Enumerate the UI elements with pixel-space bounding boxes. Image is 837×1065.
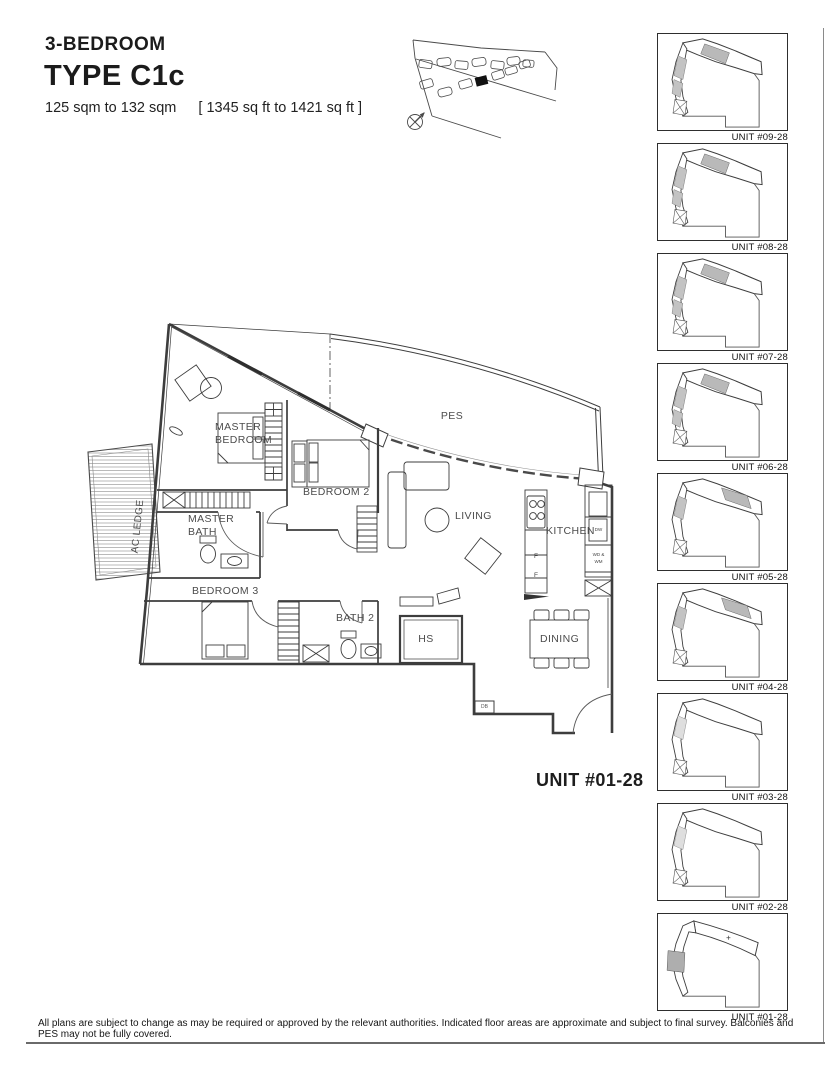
key-plan-unit-label: UNIT #06-28 — [657, 461, 788, 473]
key-plan-item: UNIT #02-28 — [657, 803, 788, 913]
key-plan-item: UNIT #06-28 — [657, 363, 788, 473]
key-plan-unit-label: UNIT #07-28 — [657, 351, 788, 363]
dishwasher-label: DW — [585, 526, 612, 533]
key-plan-thumbnail — [657, 363, 788, 461]
key-plan-item: UNIT #04-28 — [657, 583, 788, 693]
plan-area-range: 125 sqm to 132 sqm [ 1345 sq ft to 1421 … — [45, 100, 362, 116]
key-plan-thumbnail — [657, 253, 788, 351]
room-label-living: LIVING — [455, 510, 492, 523]
key-plan-thumbnail — [657, 803, 788, 901]
room-label-bath2: BATH 2 — [336, 612, 374, 625]
unit-number-label: UNIT #01-28 — [536, 770, 643, 791]
site-location-map — [408, 40, 558, 138]
key-plan-thumbnail — [657, 583, 788, 681]
disclaimer-text: All plans are subject to change as may b… — [38, 1018, 810, 1040]
key-plan-item: UNIT #09-28 — [657, 33, 788, 143]
sliding-door-wall — [375, 434, 588, 479]
plan-category-title: 3-BEDROOM — [45, 34, 166, 56]
key-plan-unit-label: UNIT #03-28 — [657, 791, 788, 803]
area-imperial: [ 1345 sq ft to 1421 sq ft ] — [198, 100, 362, 116]
area-metric: 125 sqm to 132 sqm — [45, 100, 176, 116]
unit-floor-plan — [88, 324, 612, 733]
room-label-bedroom3: BEDROOM 3 — [192, 585, 259, 598]
key-plan-unit-label: UNIT #09-28 — [657, 131, 788, 143]
door-swings — [218, 506, 612, 733]
floor-plan-page: 3-BEDROOM TYPE C1c 125 sqm to 132 sqm [ … — [0, 0, 837, 1065]
room-label-dining: DINING — [540, 633, 578, 646]
room-label-master-bath: MASTER BATH — [188, 513, 234, 539]
key-plan-unit-label: UNIT #08-28 — [657, 241, 788, 253]
pes-boundary — [330, 334, 603, 477]
key-plan-column: UNIT #09-28 UNIT #08-28 UNIT #07-28 UNIT… — [657, 33, 788, 1023]
room-label-hs: HS — [410, 633, 442, 646]
key-plan-unit-label: UNIT #02-28 — [657, 901, 788, 913]
key-plan-unit-label: UNIT #05-28 — [657, 571, 788, 583]
key-plan-thumbnail — [657, 693, 788, 791]
fridge-label-2: F — [525, 572, 547, 579]
bathroom-fixtures — [200, 536, 381, 662]
compass-icon — [408, 113, 425, 130]
key-plan-thumbnail — [657, 143, 788, 241]
kitchen-counters — [524, 485, 612, 600]
db-label: DB — [475, 704, 494, 710]
room-label-pes: PES — [434, 410, 470, 423]
key-plan-item: UNIT #03-28 — [657, 693, 788, 803]
washer-dryer-label: WD & WM — [585, 551, 612, 565]
key-plan-item: UNIT #01-28 — [657, 913, 788, 1023]
plan-type-title: TYPE C1c — [44, 60, 185, 93]
room-label-master-bedroom: MASTER BEDROOM — [215, 421, 272, 447]
page-frame-right — [823, 28, 824, 1043]
fridge-label-1: F — [525, 553, 547, 560]
room-label-bedroom2: BEDROOM 2 — [303, 486, 370, 499]
page-frame-bottom — [26, 1042, 825, 1044]
key-plan-item: UNIT #08-28 — [657, 143, 788, 253]
key-plan-thumbnail — [657, 33, 788, 131]
key-plan-item: UNIT #05-28 — [657, 473, 788, 583]
key-plan-thumbnail — [657, 913, 788, 1011]
key-plan-unit-label: UNIT #04-28 — [657, 681, 788, 693]
key-plan-thumbnail — [657, 473, 788, 571]
key-plan-item: UNIT #07-28 — [657, 253, 788, 363]
